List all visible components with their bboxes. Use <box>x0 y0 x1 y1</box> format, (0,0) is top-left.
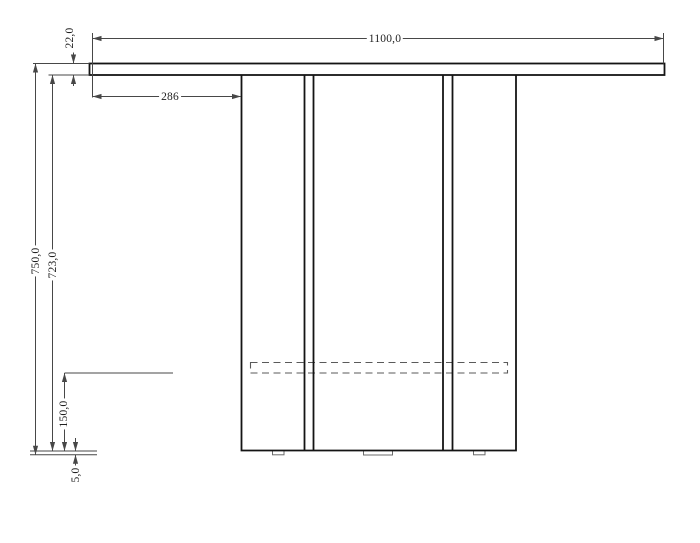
tabletop-outline <box>90 64 665 76</box>
stretcher-hidden-outline <box>251 363 508 374</box>
dim-label-tabletop-width: 1100,0 <box>367 32 403 44</box>
dim-label-foot-height: 5,0 <box>69 466 81 485</box>
dimension-arrowheads <box>33 36 664 464</box>
dim-label-tabletop-thickness: 22,0 <box>64 26 76 51</box>
tabletop <box>90 64 665 76</box>
drawing-canvas: 1100,0 22,0 286 750,0 723,0 150,0 5,0 <box>0 0 700 543</box>
dim-label-base-height: 723,0 <box>46 250 58 281</box>
drawing-geometry <box>0 0 700 543</box>
pedestal-outline <box>242 75 517 451</box>
dim-label-stretcher-offset: 150,0 <box>57 399 69 430</box>
dimension-lines <box>30 33 664 467</box>
dim-label-overhang-left: 286 <box>159 90 181 102</box>
pedestal <box>242 75 517 451</box>
dim-label-overall-height: 750,0 <box>29 246 41 277</box>
